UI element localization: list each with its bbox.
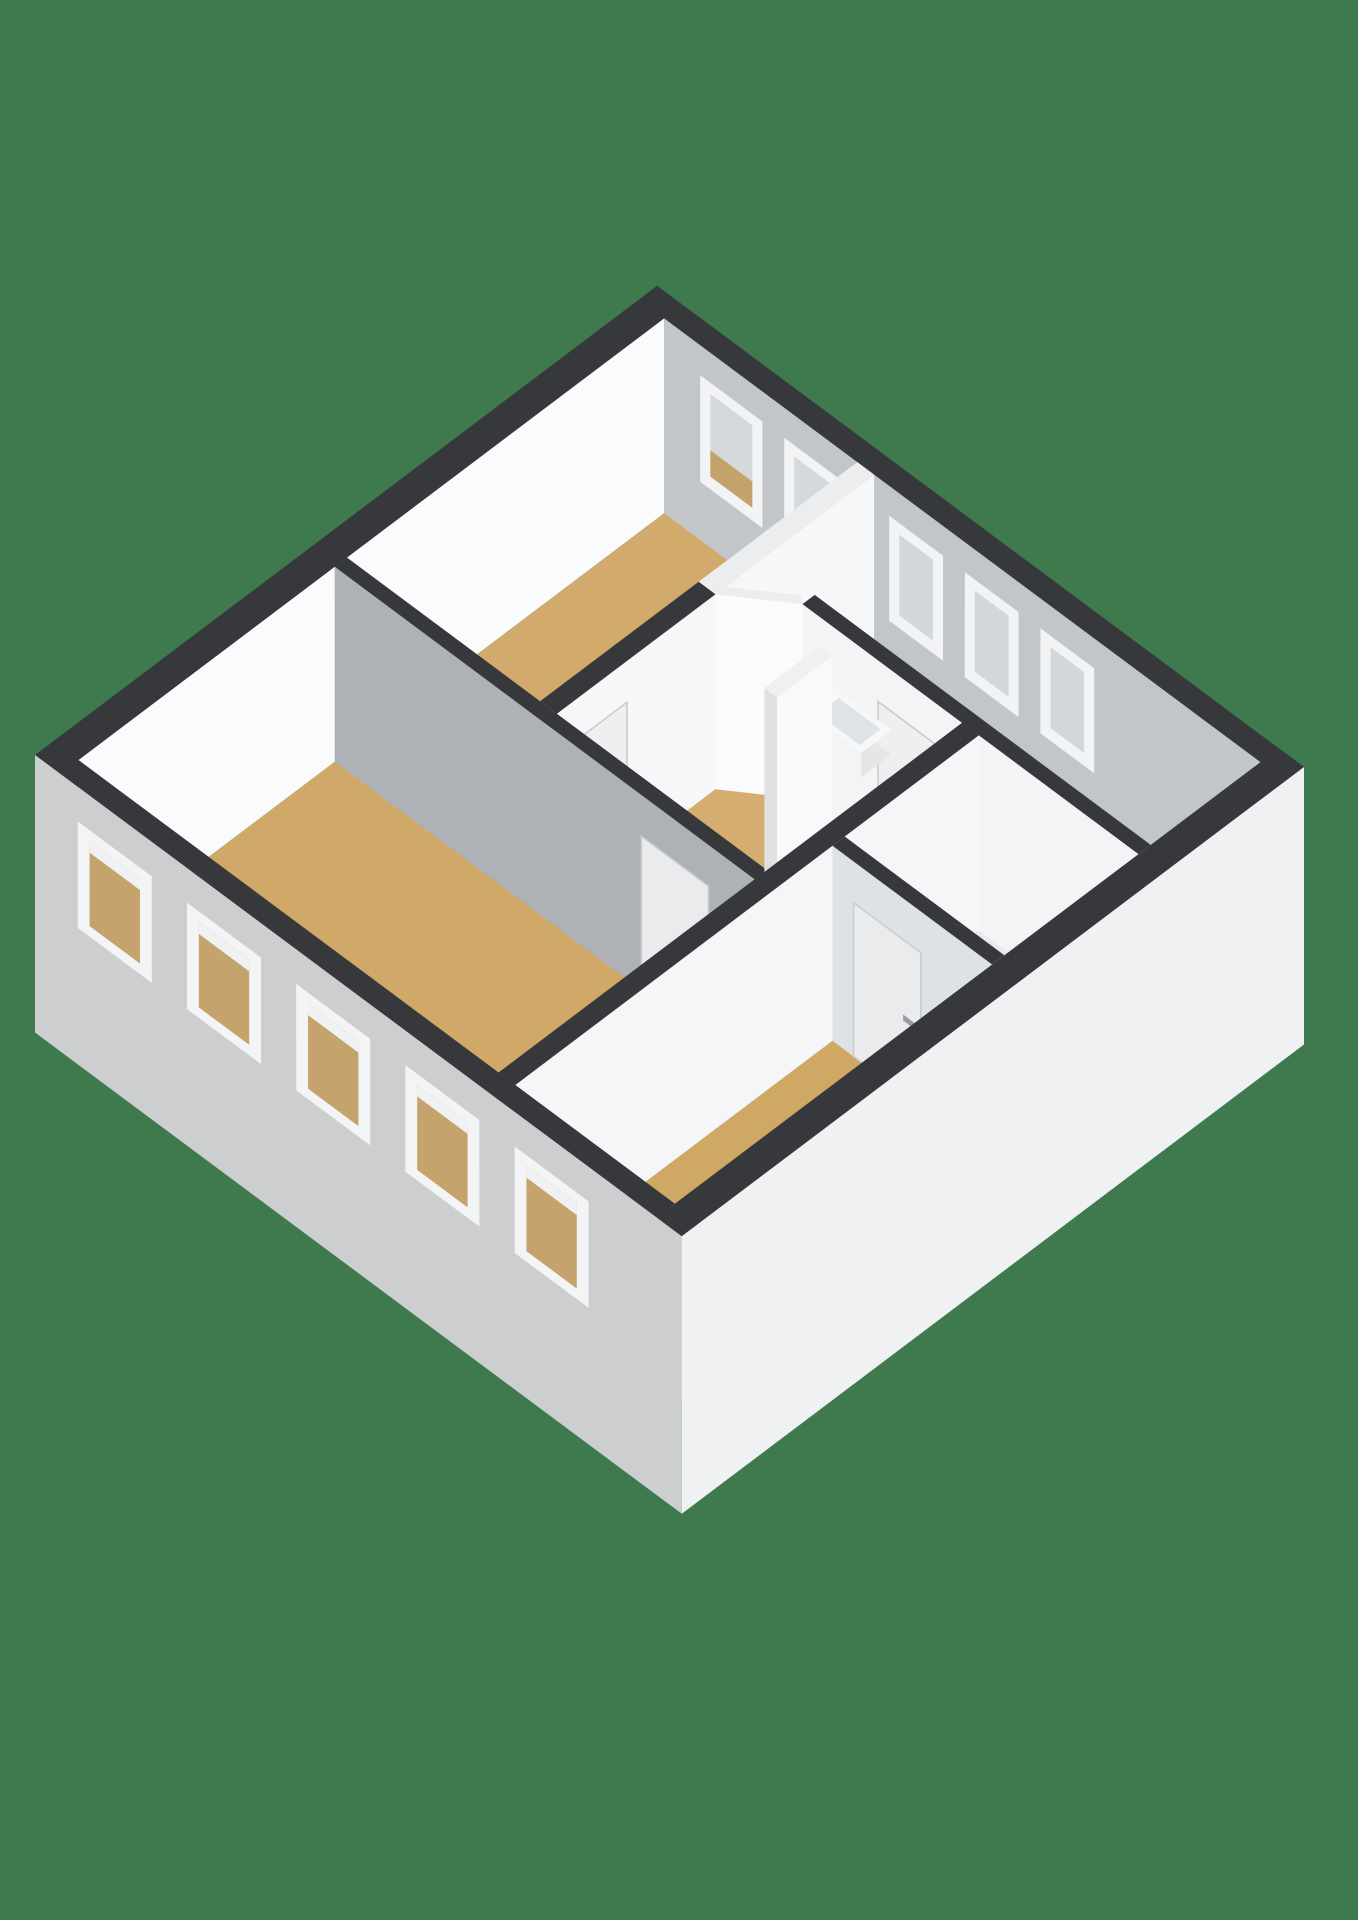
floorplan-svg: [0, 0, 1358, 1920]
floorplan-3d-view: [0, 0, 1358, 1920]
